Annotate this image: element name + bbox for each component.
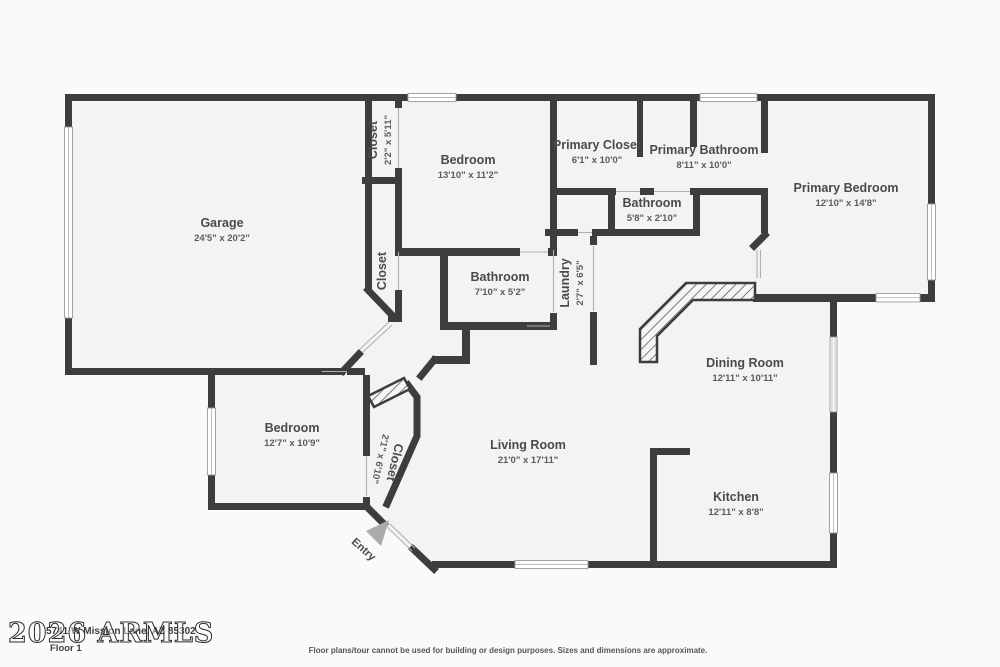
window xyxy=(700,94,757,102)
svg-text:Primary Bathroom: Primary Bathroom xyxy=(649,143,758,157)
svg-text:Closet: Closet xyxy=(366,120,380,159)
svg-text:Primary Bedroom: Primary Bedroom xyxy=(794,181,899,195)
window xyxy=(830,473,838,533)
disclaimer-text: Floor plans/tour cannot be used for buil… xyxy=(309,646,708,655)
window xyxy=(876,294,920,303)
svg-text:5'8" x 2'10": 5'8" x 2'10" xyxy=(627,213,678,224)
window xyxy=(408,94,456,102)
svg-text:Bedroom: Bedroom xyxy=(441,153,496,167)
svg-text:2'7" x 6'5": 2'7" x 6'5" xyxy=(575,260,586,305)
floor-plan-canvas: Garage24'5" x 20'2"Closet2'2" x 5'11"Bed… xyxy=(0,0,1000,667)
svg-text:Closet: Closet xyxy=(375,251,389,290)
svg-text:24'5" x 20'2": 24'5" x 20'2" xyxy=(194,233,250,244)
room-label: Closet xyxy=(375,251,389,290)
svg-text:Dining Room: Dining Room xyxy=(706,356,784,370)
svg-text:Laundry: Laundry xyxy=(558,258,572,307)
window xyxy=(208,408,216,475)
armls-watermark: 2026 ARMLS xyxy=(8,618,214,649)
svg-text:Entry: Entry xyxy=(349,536,379,564)
svg-text:Kitchen: Kitchen xyxy=(713,490,759,504)
svg-text:6'1" x 10'0": 6'1" x 10'0" xyxy=(572,155,623,166)
svg-text:2'2" x 5'11": 2'2" x 5'11" xyxy=(383,115,394,165)
svg-text:Bathroom: Bathroom xyxy=(470,270,529,284)
window xyxy=(928,204,936,280)
svg-text:Living Room: Living Room xyxy=(490,438,566,452)
sliding-door xyxy=(830,337,837,412)
svg-text:12'11" x 8'8": 12'11" x 8'8" xyxy=(708,507,763,518)
room-label: Entry xyxy=(349,536,379,564)
svg-text:13'10" x 11'2": 13'10" x 11'2" xyxy=(438,170,499,181)
room-floors xyxy=(65,94,935,568)
window xyxy=(515,561,588,569)
svg-text:8'11" x 10'0": 8'11" x 10'0" xyxy=(676,160,731,171)
svg-text:Garage: Garage xyxy=(200,216,243,230)
garage-door xyxy=(65,127,73,318)
svg-text:Bathroom: Bathroom xyxy=(622,196,681,210)
entry-arrow-icon xyxy=(366,520,389,546)
svg-text:12'11" x 10'11": 12'11" x 10'11" xyxy=(712,373,777,384)
svg-text:Primary Closet: Primary Closet xyxy=(553,138,642,152)
floor-label: Floor 1 xyxy=(50,643,82,654)
svg-text:Bedroom: Bedroom xyxy=(265,421,320,435)
svg-text:12'7" x 10'9": 12'7" x 10'9" xyxy=(264,438,320,449)
svg-text:12'10" x 14'8": 12'10" x 14'8" xyxy=(815,198,876,209)
svg-text:21'0" x 17'11": 21'0" x 17'11" xyxy=(498,455,559,466)
floor-plan-page: Garage24'5" x 20'2"Closet2'2" x 5'11"Bed… xyxy=(0,0,1000,667)
svg-text:7'10" x 5'2": 7'10" x 5'2" xyxy=(475,287,526,298)
